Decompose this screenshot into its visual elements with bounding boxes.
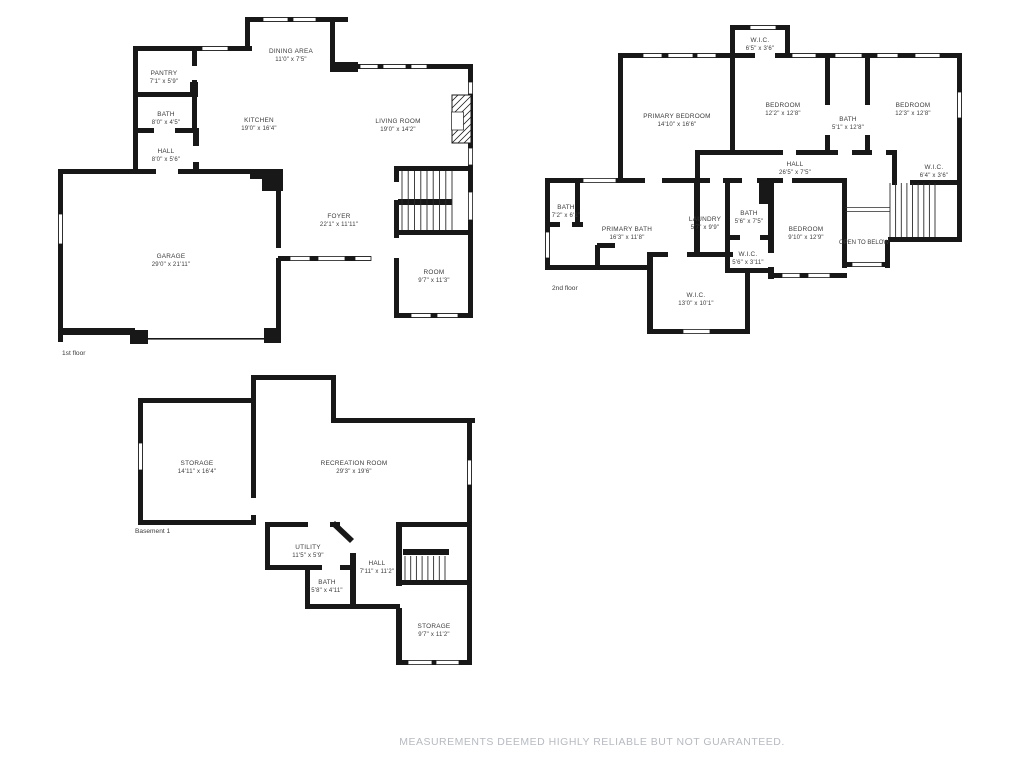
room-label-foyer: FOYER22'1" x 11'11" <box>320 213 358 228</box>
room-label-primary-bath: PRIMARY BATH16'3" x 11'8" <box>602 226 652 241</box>
room-label-bath-56: BATH5'6" x 7'5" <box>735 210 763 225</box>
caption-second-floor: 2nd floor <box>552 285 578 292</box>
disclaimer-text: MEASUREMENTS DEEMED HIGHLY RELIABLE BUT … <box>160 736 1024 748</box>
room-label-storage-b2: STORAGE9'7" x 11'2" <box>418 623 451 638</box>
room-label-bedroom-122: BEDROOM12'2" x 12'8" <box>765 102 801 117</box>
open-to-below-note: OPEN TO BELOW <box>839 240 889 246</box>
room-label-room: ROOM9'7" x 11'3" <box>418 269 450 284</box>
room-label-bedroom-910: BEDROOM9'10" x 12'9" <box>788 226 824 241</box>
open-to-below-railing <box>845 208 890 212</box>
room-label-hall-2f: HALL26'5" x 7'5" <box>779 161 811 176</box>
caption-first-floor: 1st floor <box>62 350 85 357</box>
room-label-wic-64: W.I.C.6'4" x 3'6" <box>920 164 948 179</box>
room-label-bath-1f: BATH8'0" x 4'5" <box>152 111 180 126</box>
basement-walls <box>138 375 475 665</box>
fireplace-icon <box>452 95 472 143</box>
room-label-kitchen: KITCHEN19'0" x 16'4" <box>241 117 277 132</box>
room-label-storage-b1: STORAGE14'11" x 16'4" <box>178 460 217 475</box>
room-label-bath-b1: BATH5'8" x 4'11" <box>311 579 343 594</box>
room-label-wic-top: W.I.C.6'5" x 3'6" <box>746 37 774 52</box>
room-label-bedroom-123: BEDROOM12'3" x 12'8" <box>895 102 931 117</box>
room-label-garage: GARAGE29'0" x 21'11" <box>152 253 191 268</box>
room-label-wic-130: W.I.C.13'0" x 10'1" <box>678 292 714 307</box>
room-label-living-room: LIVING ROOM19'0" x 14'2" <box>375 118 420 133</box>
room-label-laundry: LAUNDRY5'7" x 9'9" <box>689 216 721 231</box>
room-label-pantry: PANTRY7'1" x 5'9" <box>150 70 178 85</box>
floorplan-sheet: PANTRY7'1" x 5'9" BATH8'0" x 4'5" HALL8'… <box>0 0 1024 768</box>
second-floor-stairs <box>890 183 935 237</box>
room-label-bath-51: BATH5'1" x 12'8" <box>832 116 864 131</box>
caption-basement: Basement 1 <box>135 528 170 535</box>
room-label-dining-area: DINING AREA11'0" x 7'5" <box>269 48 313 63</box>
room-label-utility: UTILITY11'5" x 5'9" <box>292 544 324 559</box>
room-label-wic-56: W.I.C.5'6" x 3'11" <box>732 251 764 266</box>
second-floor-windows <box>546 26 962 334</box>
room-label-bath-72: BATH7'2" x 6'1" <box>552 204 580 219</box>
room-label-primary-bedroom: PRIMARY BEDROOM14'10" x 16'6" <box>643 113 710 128</box>
basement-stairs <box>405 556 445 580</box>
room-label-hall-b1: HALL7'11" x 11'2" <box>360 560 395 575</box>
room-label-hall-1f: HALL8'0" x 5'6" <box>152 148 180 163</box>
room-label-recreation-room: RECREATION ROOM29'3" x 19'6" <box>321 460 388 475</box>
